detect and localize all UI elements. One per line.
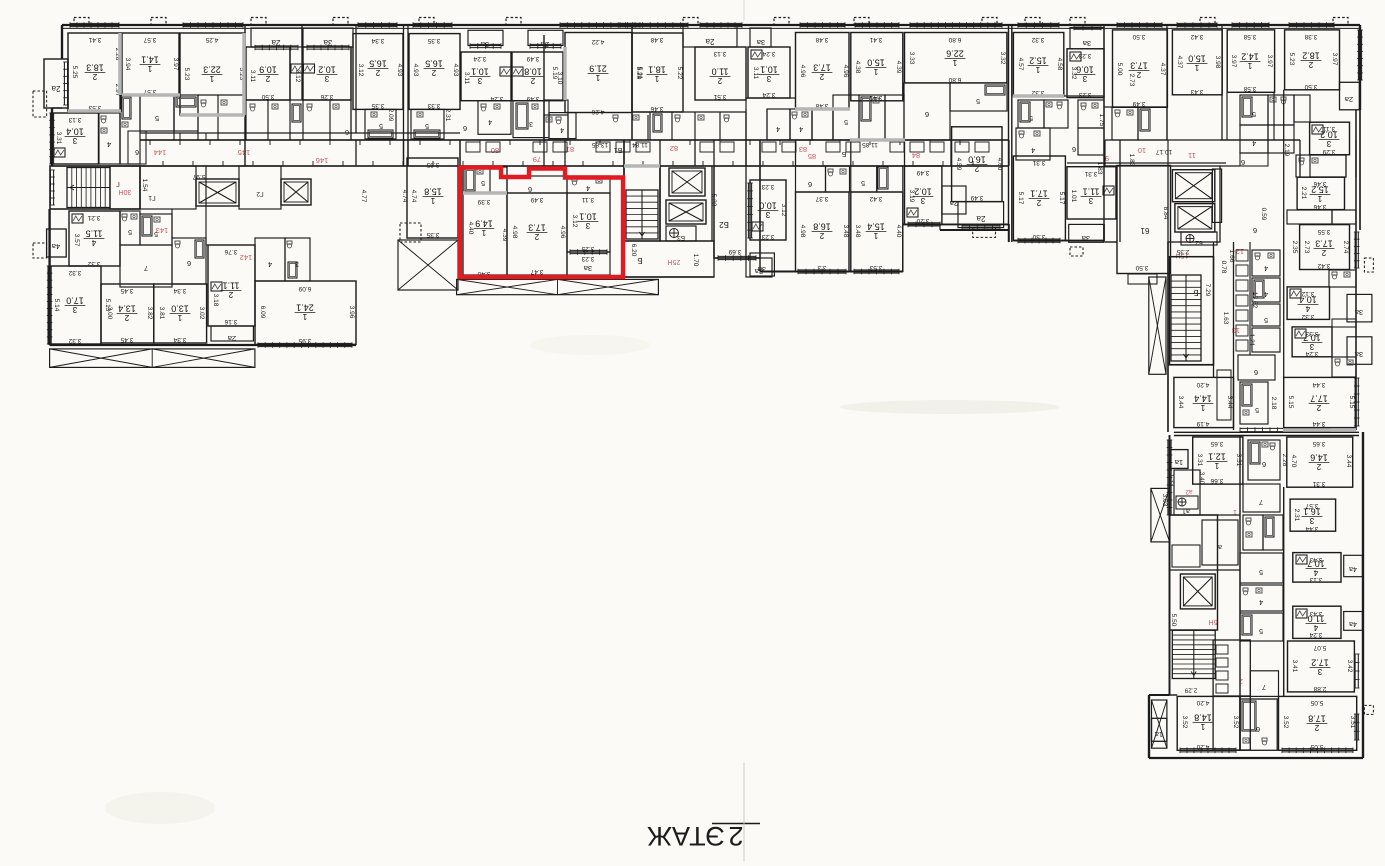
svg-text:2.31: 2.31 [1293,509,1300,522]
svg-text:10.17: 10.17 [1155,148,1172,155]
svg-text:15.0: 15.0 [867,58,885,68]
svg-text:3.21: 3.21 [87,214,100,221]
svg-text:4.26: 4.26 [591,108,604,115]
svg-text:17.2: 17.2 [1311,658,1329,668]
svg-text:15.0: 15.0 [1188,54,1206,64]
svg-text:10.1: 10.1 [760,65,778,75]
svg-text:3.50: 3.50 [261,93,274,100]
svg-text:5.17: 5.17 [1017,192,1024,205]
svg-text:3.43: 3.43 [1309,610,1322,617]
svg-text:5: 5 [844,118,848,125]
svg-text:5.23: 5.23 [1288,53,1295,66]
svg-text:3.38: 3.38 [1304,33,1317,40]
svg-text:3.12: 3.12 [294,70,301,83]
svg-text:22.3: 22.3 [203,65,221,75]
svg-text:a: a [1218,543,1222,550]
svg-text:1a: 1a [1174,458,1183,467]
svg-text:16.5: 16.5 [425,59,443,69]
svg-text:5.25: 5.25 [71,66,78,79]
svg-text:3.31: 3.31 [1196,454,1203,467]
svg-text:3.39: 3.39 [477,198,490,205]
svg-text:4.40: 4.40 [467,222,474,235]
svg-text:3.44: 3.44 [1226,396,1233,409]
svg-text:3.13: 3.13 [1309,576,1322,583]
svg-text:4: 4 [560,126,564,133]
svg-text:3.48: 3.48 [650,36,663,43]
svg-text:3.69: 3.69 [728,248,741,255]
svg-text:4.70: 4.70 [1290,455,1297,468]
svg-text:3.40: 3.40 [1198,472,1205,485]
svg-text:6.80: 6.80 [948,36,961,43]
svg-text:15.2: 15.2 [1029,56,1047,66]
svg-text:2.18: 2.18 [1270,397,1277,410]
svg-text:3.97: 3.97 [1331,53,1338,66]
svg-text:2a: 2a [949,199,958,208]
svg-text:17.8: 17.8 [1308,714,1326,724]
svg-text:3.35: 3.35 [427,37,440,44]
svg-text:3.31: 3.31 [1032,159,1045,166]
svg-text:25H: 25H [668,258,681,265]
svg-text:1.54: 1.54 [141,179,148,192]
svg-text:3.49: 3.49 [530,196,543,203]
svg-text:6: 6 [463,124,467,133]
svg-text:10.9: 10.9 [259,65,277,75]
svg-text:3.76: 3.76 [224,248,237,255]
svg-text:11.1: 11.1 [223,281,240,291]
svg-text:4.93: 4.93 [452,64,459,77]
svg-text:17.3: 17.3 [1130,61,1148,71]
svg-text:3.26: 3.26 [320,93,333,100]
svg-text:3.51: 3.51 [713,93,726,100]
svg-text:3.11: 3.11 [752,67,759,80]
svg-text:3a: 3a [757,265,766,274]
svg-text:5.14: 5.14 [53,299,60,312]
svg-text:3.35: 3.35 [371,102,384,109]
svg-text:3.00: 3.00 [106,307,113,320]
svg-text:11: 11 [1188,151,1196,160]
svg-text:82: 82 [670,144,678,153]
svg-text:3.57: 3.57 [73,234,80,247]
svg-text:142: 142 [240,253,253,262]
svg-text:4.96: 4.96 [559,226,566,239]
svg-text:3.24: 3.24 [1309,631,1322,638]
svg-text:4.74: 4.74 [401,190,408,203]
svg-text:6: 6 [808,180,812,189]
svg-text:4.39: 4.39 [895,61,902,74]
svg-text:10.4: 10.4 [66,127,84,137]
svg-text:5.00: 5.00 [1116,63,1123,76]
svg-text:61: 61 [1140,226,1149,235]
svg-text:2a: 2a [1344,95,1353,104]
svg-text:5.50: 5.50 [1170,614,1177,627]
svg-text:3.96: 3.96 [348,306,355,319]
svg-text:6: 6 [925,110,929,119]
svg-text:17.0: 17.0 [66,296,84,306]
svg-text:4.25: 4.25 [205,36,218,43]
svg-text:5: 5 [1264,316,1268,323]
svg-text:16.5: 16.5 [369,59,387,69]
svg-text:3.31: 3.31 [55,132,62,145]
svg-text:3.13: 3.13 [68,116,81,123]
svg-text:11.5: 11.5 [86,229,103,239]
svg-text:5: 5 [154,230,158,237]
svg-text:3.47: 3.47 [530,268,543,275]
svg-text:5: 5 [976,97,980,104]
svg-text:18.2: 18.2 [1302,51,1320,61]
svg-text:3.33: 3.33 [1305,330,1318,337]
svg-text:3.46: 3.46 [1313,180,1326,187]
svg-text:7.29: 7.29 [1204,284,1211,297]
svg-text:2.35: 2.35 [1176,248,1189,255]
svg-text:3.33: 3.33 [427,102,440,109]
svg-text:5.07: 5.07 [1313,644,1326,651]
svg-text:7: 7 [144,264,148,273]
svg-text:3.34: 3.34 [173,287,186,294]
svg-text:6.80: 6.80 [948,76,961,83]
svg-text:145: 145 [238,148,251,157]
svg-text:3.11: 3.11 [582,196,595,203]
svg-text:2: 2 [728,821,743,851]
svg-text:17.3: 17.3 [1315,239,1333,249]
svg-text:2.73: 2.73 [1128,74,1135,87]
svg-text:14.1: 14.1 [141,55,159,65]
svg-text:3a: 3a [583,264,592,273]
svg-text:4: 4 [1259,598,1263,605]
svg-text:3.41: 3.41 [1291,660,1298,673]
svg-text:18.3: 18.3 [86,63,104,73]
svg-text:3.42: 3.42 [1317,262,1330,269]
svg-text:Г: Г [116,180,120,187]
svg-text:5.97: 5.97 [192,173,205,180]
svg-text:3.13: 3.13 [713,50,726,57]
svg-text:4.37: 4.37 [1176,56,1183,69]
svg-text:4.19: 4.19 [1196,420,1209,427]
svg-text:16.8: 16.8 [813,222,831,232]
svg-text:3.58: 3.58 [1243,85,1256,92]
svg-text:3.24: 3.24 [762,91,775,98]
svg-text:4.96: 4.96 [842,65,849,78]
svg-text:80: 80 [491,146,499,155]
svg-text:3.32: 3.32 [1301,313,1314,320]
svg-text:3.65: 3.65 [1210,440,1223,447]
svg-text:3.32: 3.32 [1031,36,1044,43]
svg-text:4: 4 [586,184,590,191]
svg-text:2.74: 2.74 [1342,241,1349,254]
svg-text:5.22: 5.22 [676,67,683,80]
svg-text:2.73: 2.73 [1303,241,1310,254]
svg-text:3.24: 3.24 [762,50,775,57]
svg-text:3.57: 3.57 [1305,502,1318,509]
svg-text:3.02: 3.02 [198,307,205,320]
svg-text:3.49: 3.49 [970,194,983,201]
svg-text:3.45: 3.45 [120,287,133,294]
svg-text:11.0: 11.0 [712,67,729,77]
svg-text:2.28: 2.28 [1281,454,1288,467]
svg-text:17.3: 17.3 [528,223,546,233]
svg-text:3.58: 3.58 [1243,33,1256,40]
svg-text:3: 3 [529,120,533,127]
svg-text:Г2: Г2 [256,190,264,197]
svg-text:3.23: 3.23 [581,255,594,262]
svg-text:3.29: 3.29 [1322,148,1335,155]
svg-text:3.12: 3.12 [780,204,787,217]
svg-text:2.35: 2.35 [1291,241,1298,254]
svg-text:6.09: 6.09 [259,306,266,319]
svg-text:Г1: Г1 [148,194,156,201]
svg-text:3.49: 3.49 [1132,100,1145,107]
svg-text:3a: 3a [1081,234,1090,243]
svg-text:5: 5 [128,228,132,235]
svg-text:3.97: 3.97 [1266,55,1273,68]
svg-text:146: 146 [316,156,329,165]
svg-text:3a: 3a [1082,39,1091,48]
svg-text:4.93: 4.93 [396,64,403,77]
svg-text:3.44: 3.44 [1305,525,1318,532]
svg-text:5H: 5H [1209,618,1218,625]
svg-text:4.20: 4.20 [1196,699,1209,706]
svg-text:13.0: 13.0 [171,304,189,314]
svg-text:3.23: 3.23 [761,233,774,240]
svg-text:3.49: 3.49 [526,55,539,62]
svg-text:Б: Б [637,256,642,265]
svg-text:3.52: 3.52 [1232,716,1239,729]
svg-text:3.98: 3.98 [1214,56,1221,69]
svg-text:3.44: 3.44 [1312,420,1325,427]
svg-text:3.97: 3.97 [172,58,179,71]
svg-text:2a: 2a [705,37,714,46]
svg-text:2.31: 2.31 [444,109,451,122]
svg-text:7: 7 [1262,683,1266,692]
svg-text:79: 79 [533,155,541,164]
svg-text:a2: a2 [1185,488,1193,495]
svg-text:1.83: 1.83 [1128,154,1135,167]
svg-text:3.65: 3.65 [1312,440,1325,447]
svg-text:ЭТАЖ: ЭТАЖ [647,821,725,851]
svg-text:3.66: 3.66 [1210,477,1223,484]
svg-text:3.12: 3.12 [357,64,364,77]
svg-text:0.78: 0.78 [1220,261,1227,274]
svg-text:14.8: 14.8 [1194,713,1212,723]
svg-text:3.45: 3.45 [120,336,133,343]
svg-text:5: 5 [155,114,159,123]
svg-text:4a: 4a [1349,565,1357,572]
svg-text:5: 5 [1259,568,1263,575]
svg-text:3a: 3a [756,38,765,47]
svg-text:11.1: 11.1 [1083,187,1100,197]
svg-text:5: 5 [1252,110,1256,117]
svg-text:3.57: 3.57 [143,36,156,43]
svg-text:4: 4 [1264,290,1268,297]
svg-text:5.19: 5.19 [551,67,558,80]
svg-text:5.15: 5.15 [1287,396,1294,409]
svg-text:4: 4 [1031,146,1035,153]
svg-text:3.34: 3.34 [371,37,384,44]
svg-text:30H: 30H [119,188,132,195]
svg-text:1.01: 1.01 [1070,190,1077,203]
svg-text:3.32: 3.32 [68,269,81,276]
svg-text:62: 62 [1195,239,1203,246]
svg-text:3.43: 3.43 [1309,556,1322,563]
svg-text:13.4: 13.4 [118,304,136,314]
svg-text:4a: 4a [51,242,60,251]
svg-text:0.59: 0.59 [1260,208,1267,221]
svg-text:3.11: 3.11 [463,72,470,85]
svg-text:5: 5 [481,179,485,186]
svg-text:6: 6 [1253,226,1257,235]
svg-text:4.20: 4.20 [1196,381,1209,388]
svg-text:2a: 2a [51,84,60,93]
svg-text:3.82: 3.82 [146,307,153,320]
svg-text:85: 85 [808,152,816,161]
svg-text:3.42: 3.42 [869,195,882,202]
svg-text:3.34: 3.34 [173,336,186,343]
svg-text:5: 5 [1259,627,1263,634]
svg-text:3.12: 3.12 [571,215,578,228]
svg-text:1: 1 [1233,508,1237,515]
svg-text:4.37: 4.37 [1159,63,1166,76]
svg-text:10.0: 10.0 [759,201,777,211]
svg-text:2a: 2a [976,214,985,223]
svg-text:14.4: 14.4 [1194,394,1212,404]
svg-text:4.58: 4.58 [1056,58,1063,71]
svg-text:5: 5 [379,122,383,129]
svg-text:4.98: 4.98 [799,225,806,238]
svg-text:3.41: 3.41 [869,36,882,43]
svg-text:5: 5 [425,122,429,129]
svg-text:3.32: 3.32 [999,52,1006,65]
svg-text:4: 4 [776,125,780,132]
svg-text:7: 7 [1259,498,1263,507]
svg-text:4.40: 4.40 [895,225,902,238]
svg-text:4: 4 [799,125,803,132]
svg-text:1.70: 1.70 [692,254,699,267]
svg-text:18.1: 18.1 [648,65,666,75]
svg-text:6: 6 [1072,145,1076,154]
svg-text:3.31: 3.31 [1084,170,1097,177]
svg-text:10.2: 10.2 [318,65,336,75]
svg-text:Б2: Б2 [719,220,729,229]
svg-text:4: 4 [268,260,272,269]
svg-text:15.8: 15.8 [424,187,442,197]
svg-text:4.98: 4.98 [511,226,518,239]
svg-text:3.24: 3.24 [1305,350,1318,357]
svg-text:4.38: 4.38 [854,61,861,74]
svg-text:3.48: 3.48 [815,36,828,43]
svg-text:3.12: 3.12 [1301,290,1314,297]
svg-text:3.11: 3.11 [249,70,256,83]
svg-text:3.49: 3.49 [526,95,539,102]
svg-text:4.93: 4.93 [412,64,419,77]
svg-text:4: 4 [1264,264,1268,271]
svg-text:3.43: 3.43 [1190,88,1203,95]
svg-text:3.37: 3.37 [815,195,828,202]
svg-text:12: 12 [1236,247,1244,256]
svg-text:17.7: 17.7 [1310,394,1328,404]
svg-text:2.88: 2.88 [1313,685,1326,692]
svg-text:1a: 1a [1154,730,1163,739]
svg-text:10.8: 10.8 [524,67,542,77]
svg-text:16.0: 16.0 [968,155,986,165]
svg-text:3.16: 3.16 [224,318,237,325]
svg-text:3.44: 3.44 [1312,381,1325,388]
svg-text:2.21: 2.21 [1300,187,1307,200]
svg-text:3.31: 3.31 [1235,454,1242,467]
svg-text:3.81: 3.81 [158,307,165,320]
svg-text:5.05: 5.05 [1310,699,1323,706]
svg-text:3.24: 3.24 [473,55,486,62]
svg-text:14.2: 14.2 [1241,52,1259,62]
svg-text:3.50: 3.50 [1304,83,1317,90]
svg-text:4.77: 4.77 [360,190,367,203]
svg-text:2.29: 2.29 [1184,687,1197,694]
svg-text:15.4: 15.4 [867,222,885,232]
svg-text:3.11: 3.11 [1323,125,1336,132]
svg-text:3.23: 3.23 [761,183,774,190]
svg-text:5.23: 5.23 [183,68,190,81]
svg-text:4.60: 4.60 [996,158,1003,171]
svg-text:3.19: 3.19 [908,190,915,203]
svg-text:6: 6 [1262,460,1266,469]
svg-text:3.32: 3.32 [68,337,81,344]
svg-text:4.96: 4.96 [799,65,806,78]
svg-text:10.6: 10.6 [1076,65,1094,75]
svg-text:14.9: 14.9 [475,219,493,229]
svg-text:144: 144 [154,148,167,157]
svg-text:14.6: 14.6 [1310,453,1328,463]
svg-text:4a: 4a [1349,620,1357,627]
svg-text:4.22: 4.22 [591,38,604,45]
svg-text:10.1: 10.1 [579,212,597,222]
svg-text:3.44: 3.44 [1177,396,1184,409]
svg-text:3.48: 3.48 [842,225,849,238]
svg-text:Б: Б [1193,288,1198,297]
svg-text:5.20: 5.20 [635,67,642,80]
svg-text:3.41: 3.41 [88,36,101,43]
svg-text:3.18: 3.18 [212,294,219,307]
svg-text:3.23: 3.23 [1078,52,1091,59]
svg-text:4.59: 4.59 [955,158,962,171]
svg-text:22.6: 22.6 [946,49,964,59]
svg-text:3.31: 3.31 [1312,480,1325,487]
svg-text:4: 4 [488,118,492,125]
svg-text:6: 6 [1254,368,1258,377]
svg-text:24.1: 24.1 [296,303,314,313]
svg-text:3.50: 3.50 [1135,264,1148,271]
svg-text:3.46: 3.46 [1313,203,1326,210]
svg-text:a1: a1 [1182,507,1190,514]
svg-text:3.32: 3.32 [1070,67,1077,80]
svg-text:4.74: 4.74 [410,190,417,203]
svg-text:83: 83 [799,145,807,154]
svg-text:10.1: 10.1 [471,67,489,77]
svg-text:2a: 2a [227,334,236,343]
svg-text:3.48: 3.48 [854,225,861,238]
svg-text:6.20: 6.20 [630,244,637,257]
svg-text:3.52: 3.52 [1181,716,1188,729]
svg-text:3.97: 3.97 [1230,55,1237,68]
svg-text:3.42: 3.42 [1346,660,1353,673]
svg-text:1.63: 1.63 [1222,312,1229,325]
svg-text:4: 4 [107,140,111,149]
svg-text:6: 6 [135,148,139,155]
svg-text:3.55: 3.55 [1317,228,1330,235]
svg-text:17.3: 17.3 [813,63,831,73]
svg-text:3.35: 3.35 [426,231,439,238]
svg-text:3.44: 3.44 [1345,455,1352,468]
svg-text:2.09: 2.09 [387,109,394,122]
svg-text:6.09: 6.09 [298,285,311,292]
svg-text:3.94: 3.94 [124,58,131,71]
